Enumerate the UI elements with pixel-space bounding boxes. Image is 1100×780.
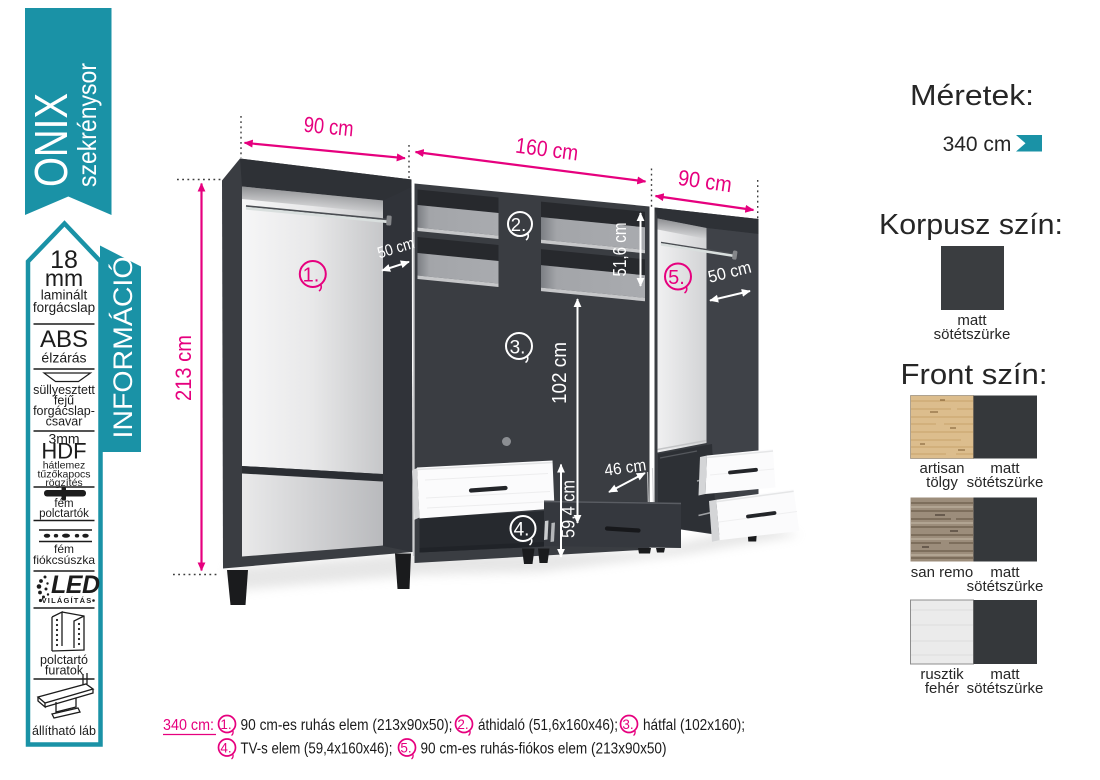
- svg-text:102 cm: 102 cm: [549, 342, 571, 404]
- svg-text:fiókcsúszka: fiókcsúszka: [33, 553, 95, 567]
- svg-text:340 cm:: 340 cm:: [163, 717, 214, 734]
- svg-text:sötétszürke: sötétszürke: [967, 680, 1044, 697]
- svg-text:sötétszürke: sötétszürke: [967, 578, 1044, 595]
- svg-text:sötétszürke: sötétszürke: [934, 326, 1011, 343]
- svg-text:LED: LED: [51, 571, 100, 599]
- svg-text:4.: 4.: [220, 741, 231, 756]
- svg-text:polctartók: polctartók: [39, 508, 89, 520]
- svg-text:59,4 cm: 59,4 cm: [558, 480, 579, 538]
- svg-text:VILÁGÍTÁS: VILÁGÍTÁS: [42, 596, 93, 605]
- svg-text:4.: 4.: [514, 520, 530, 541]
- svg-text:90 cm-es ruhás-fiókos elem (21: 90 cm-es ruhás-fiókos elem (213x90x50): [421, 741, 667, 758]
- svg-text:furatok: furatok: [45, 664, 84, 678]
- svg-text:213 cm: 213 cm: [171, 335, 196, 401]
- svg-text:INFORMÁCIÓ: INFORMÁCIÓ: [107, 257, 138, 439]
- svg-text:csavar: csavar: [46, 415, 83, 429]
- svg-text:Méretek:: Méretek:: [910, 80, 1034, 112]
- svg-text:90 cm-es ruhás elem (213x90x50: 90 cm-es ruhás elem (213x90x50);: [241, 717, 453, 734]
- svg-text:90 cm: 90 cm: [303, 112, 355, 142]
- svg-text:3.: 3.: [622, 717, 633, 732]
- svg-text:élzárás: élzárás: [41, 350, 86, 366]
- svg-text:hátfal (102x160);: hátfal (102x160);: [643, 717, 745, 734]
- svg-text:2.: 2.: [457, 717, 468, 732]
- svg-text:san remo: san remo: [911, 564, 974, 581]
- svg-text:sötétszürke: sötétszürke: [967, 474, 1044, 491]
- svg-text:5.: 5.: [400, 741, 411, 756]
- svg-text:160 cm: 160 cm: [514, 133, 580, 166]
- svg-text:51,6 cm: 51,6 cm: [609, 223, 630, 277]
- svg-text:Front szín:: Front szín:: [901, 359, 1048, 391]
- svg-text:forgácslap: forgácslap: [33, 300, 95, 315]
- svg-text:ONIX: ONIX: [25, 93, 77, 187]
- svg-text:3.: 3.: [510, 338, 526, 359]
- svg-text:1.: 1.: [220, 717, 231, 732]
- svg-text:fehér: fehér: [925, 680, 959, 697]
- svg-text:tölgy: tölgy: [926, 474, 958, 491]
- svg-text:TV-s elem (59,4x160x46);: TV-s elem (59,4x160x46);: [241, 741, 393, 758]
- svg-text:90 cm: 90 cm: [677, 165, 734, 197]
- svg-text:2.: 2.: [511, 214, 526, 235]
- svg-text:5.: 5.: [668, 267, 685, 289]
- svg-text:szekrénysor: szekrénysor: [72, 63, 102, 187]
- svg-text:állítható láb: állítható láb: [32, 724, 96, 738]
- svg-text:1.: 1.: [303, 265, 320, 287]
- svg-text:Korpusz szín:: Korpusz szín:: [879, 209, 1063, 241]
- svg-text:340 cm: 340 cm: [943, 133, 1012, 156]
- svg-text:áthidaló (51,6x160x46);: áthidaló (51,6x160x46);: [478, 717, 618, 734]
